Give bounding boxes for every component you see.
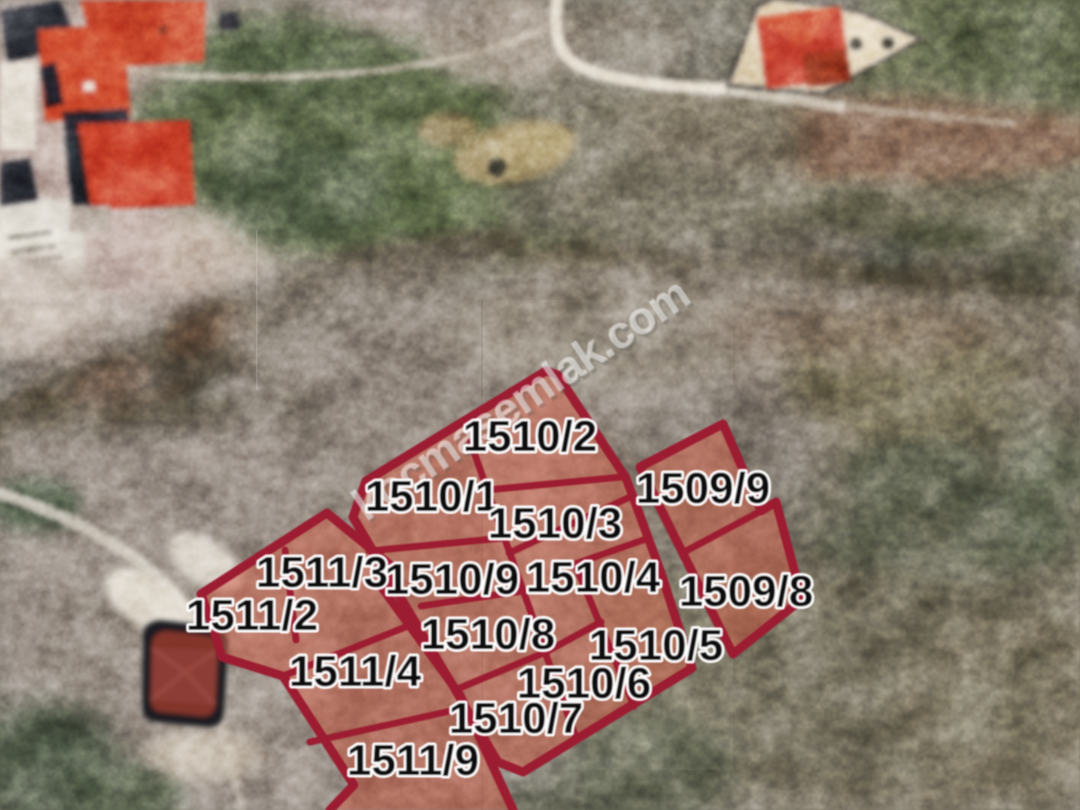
svg-text:1511/3: 1511/3 [256,548,388,597]
svg-text:1510/4: 1510/4 [526,553,661,602]
svg-text:1510/3: 1510/3 [488,499,623,548]
svg-text:1510/2: 1510/2 [463,412,598,461]
svg-text:1511/4: 1511/4 [289,647,422,696]
svg-text:1510/1: 1510/1 [365,472,500,521]
svg-text:1511/2: 1511/2 [186,591,318,640]
svg-text:1510/8: 1510/8 [421,610,556,659]
svg-text:1509/8: 1509/8 [679,567,814,616]
svg-text:1509/9: 1509/9 [636,464,771,513]
svg-text:1510/9: 1510/9 [385,555,520,604]
svg-text:1511/9: 1511/9 [347,736,479,785]
